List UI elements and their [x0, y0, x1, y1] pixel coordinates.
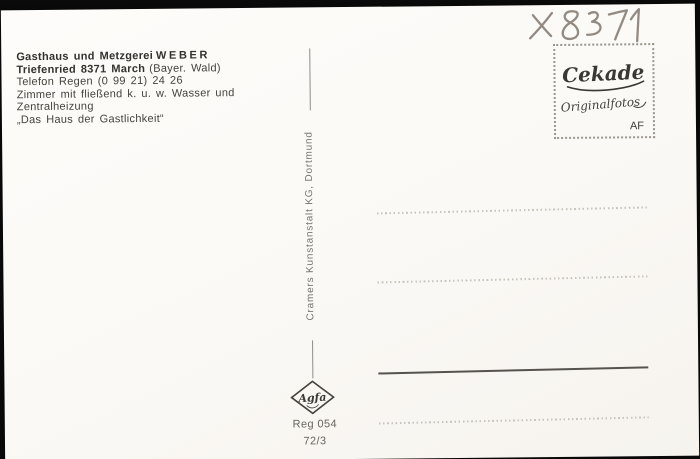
address-line-4: [379, 416, 649, 424]
address-text: Triefenried 8371 March: [16, 63, 145, 76]
address-line-3: [378, 366, 648, 374]
agfa-wordmark: Agfa: [297, 391, 327, 406]
divider-line-bottom: [312, 340, 314, 378]
sender-address-line: Triefenried 8371 March(Bayer. Wald): [16, 62, 234, 77]
stamp-artwork: Cekade Originalfotos AF: [555, 45, 653, 137]
divider-line-top: [309, 48, 311, 110]
agfa-logo: Agfa: [288, 379, 336, 415]
handwriting-strokes: [530, 9, 639, 42]
region-text: (Bayer. Wald): [149, 62, 221, 75]
stamp-product: Originalfotos: [560, 94, 640, 114]
registry-number: Reg 054: [261, 416, 369, 434]
registry-block: Reg 054 72/3: [261, 416, 369, 451]
amenities-line-1: Zimmer mit fließend k. u. w. Wasser und: [17, 87, 235, 102]
address-line-1: [377, 206, 647, 214]
postcard-back: Gasthaus und MetzgereiWEBER Triefenried …: [1, 4, 699, 459]
business-name: Gasthaus und Metzgerei: [16, 50, 153, 63]
slogan-line: „Das Haus der Gastlichkeit“: [17, 112, 235, 127]
stamp-initials: AF: [630, 120, 644, 132]
publisher-credit: Cramers Kunstanstalt KG, Dortmund: [303, 111, 318, 341]
stamp-brand: Cekade: [562, 60, 645, 88]
address-line-2: [377, 275, 647, 283]
owner-name: WEBER: [156, 49, 210, 62]
postcard-scan: Gasthaus und MetzgereiWEBER Triefenried …: [0, 0, 700, 459]
sender-info-block: Gasthaus und MetzgereiWEBER Triefenried …: [16, 49, 235, 127]
series-code: 72/3: [261, 433, 369, 451]
agfa-flourish: [307, 404, 319, 408]
stamp-box: Cekade Originalfotos AF: [553, 43, 655, 139]
